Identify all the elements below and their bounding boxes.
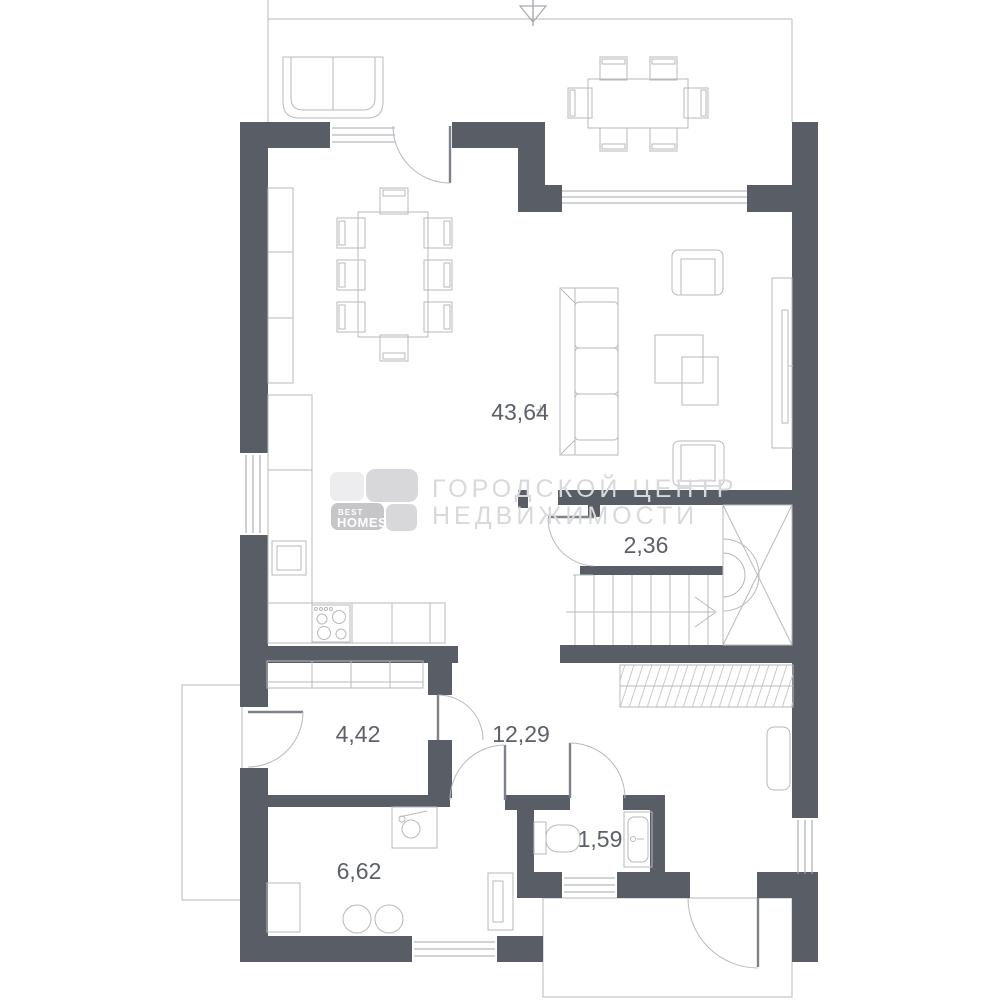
kitchen (268, 188, 452, 643)
watermark-line2: НЕДВИЖИМОСТИ (432, 502, 698, 530)
label-hallway: 4,42 (336, 721, 381, 747)
armchair-top-icon (672, 250, 723, 295)
label-living-kitchen: 43,64 (491, 399, 549, 425)
kitchen-counter-bottom (268, 603, 445, 643)
window-living-top-icon (562, 191, 747, 203)
terrace-dining-set (568, 57, 708, 151)
door-wc-icon (570, 743, 625, 798)
sofa-icon (560, 288, 618, 455)
stair-winder (723, 505, 792, 645)
wardrobe-hallway (267, 661, 423, 688)
washbasin-icon (624, 812, 652, 867)
entrance-arrow-icon (520, 0, 546, 26)
toilet-icon (534, 822, 580, 854)
walls (240, 122, 818, 962)
stair-risers (573, 575, 708, 645)
watermark: BEST HOMES ГОРОДСКОЙ ЦЕНТР НЕДВИЖИМОСТИ (330, 469, 737, 531)
window-kitchen-top-icon (332, 128, 395, 142)
window-right-wall-icon (798, 820, 812, 874)
entrance-porch (543, 898, 792, 997)
door-entrance-icon (688, 898, 758, 968)
kitchen-tall-cabinet (268, 395, 312, 603)
label-utility: 6,62 (337, 858, 382, 884)
tv-console-icon (772, 278, 793, 448)
door-hallway-icon (438, 695, 483, 740)
best-homes-logo: BEST HOMES (330, 469, 418, 531)
wardrobe-corridor-hatched (620, 665, 793, 707)
kitchen-counter-left (268, 188, 293, 383)
label-wc: 1,59 (578, 826, 623, 852)
label-corridor: 12,29 (492, 721, 550, 747)
window-kitchen-left-icon (246, 455, 260, 533)
living-room (536, 250, 793, 486)
door-side-porch-icon (248, 712, 303, 767)
utility-room (267, 807, 513, 933)
door-terrace-icon (393, 126, 450, 183)
dining-set (337, 188, 452, 361)
stair-walk-line (566, 597, 716, 627)
floor-plan: BEST HOMES ГОРОДСКОЙ ЦЕНТР НЕДВИЖИМОСТИ … (0, 0, 1000, 1000)
coffee-tables (655, 335, 718, 405)
fridge-icon (272, 541, 306, 575)
window-utility-bottom-icon (414, 942, 495, 956)
washer-dryer-icons (343, 905, 403, 933)
utility-cabinet (267, 883, 300, 932)
laundry-sink-icon (392, 807, 437, 848)
door-utility-icon (450, 745, 505, 800)
radiator-corridor-icon (767, 727, 790, 790)
logo-text-homes: HOMES (337, 515, 387, 530)
side-porch (182, 685, 242, 900)
window-wc-bottom-icon (564, 878, 615, 892)
watermark-line1: ГОРОДСКОЙ ЦЕНТР (432, 473, 737, 503)
floor-plan-canvas: BEST HOMES ГОРОДСКОЙ ЦЕНТР НЕДВИЖИМОСТИ … (0, 0, 1000, 1000)
terrace-sofa (283, 57, 383, 118)
label-stair-landing: 2,36 (624, 532, 669, 558)
radiator-utility-icon (488, 873, 513, 930)
stove-icon (312, 605, 350, 642)
